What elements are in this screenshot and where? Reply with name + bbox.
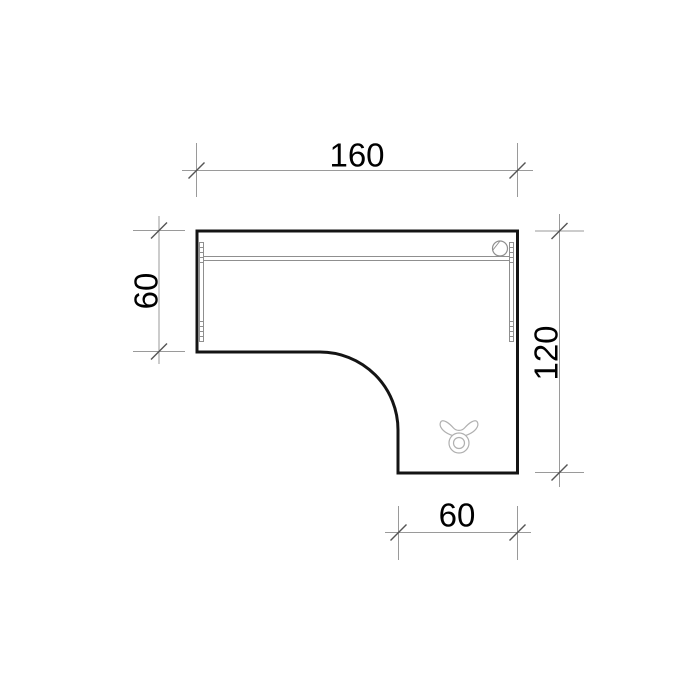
dimension-label-top-width: 160 bbox=[329, 137, 384, 174]
desk-plan-drawing: 160 60 120 60 bbox=[0, 0, 700, 700]
dimension-label-bottom-width: 60 bbox=[439, 497, 476, 534]
dimension-left-depth: 60 bbox=[128, 216, 186, 364]
dimension-bottom-width: 60 bbox=[385, 497, 531, 561]
dimension-label-right-depth: 120 bbox=[528, 325, 565, 380]
dimension-label-left-depth: 60 bbox=[128, 273, 165, 310]
technical-drawing-canvas: 160 60 120 60 bbox=[0, 0, 700, 700]
dimension-right-depth: 120 bbox=[528, 214, 585, 487]
dimension-top-width: 160 bbox=[182, 137, 533, 198]
desk-outline bbox=[197, 231, 518, 473]
cable-grommet-icon bbox=[493, 241, 508, 256]
